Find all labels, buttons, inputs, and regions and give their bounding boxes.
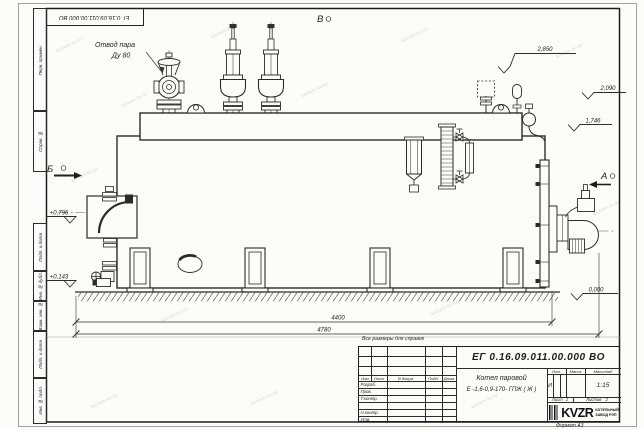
elevation-lower: +0,143 — [50, 275, 69, 281]
title-block: ЕГ 0.16.09.011.00.000 ВО Изм Лист N доку… — [358, 346, 620, 422]
margin-box-sprav-no: Справ. № — [33, 110, 47, 172]
elevation-upper: 2,090 — [599, 86, 616, 92]
view-label-v: В — [317, 14, 324, 25]
lifting-lug-right — [493, 105, 510, 114]
margin-box-inv-dubl: Инв. № дубл. — [33, 270, 47, 302]
safety-valves — [221, 24, 284, 113]
col-header-izm: Изм — [359, 375, 371, 381]
logo-name: KVZR — [561, 406, 593, 420]
elevation-platform: 1,746 — [585, 119, 601, 125]
steam-outlet-valve — [154, 53, 184, 113]
row-label-nkontr: Н.контр. — [361, 410, 379, 415]
row-label-utv: Утв. — [361, 417, 371, 422]
col-header-date: Дата — [442, 375, 456, 381]
drawing-sheet: kotlam-kv.kz kotlam-kv.kz kotlam-kv.kz k… — [0, 0, 644, 430]
margin-box-inv-podl: Инв. № подл. — [33, 377, 47, 424]
margin-box-podp-data-2: Подп. и дата — [33, 330, 47, 379]
margin-box-vzam-inv: Взам. инв. № — [33, 300, 47, 332]
sheet-cell: Лист1 — [547, 397, 573, 402]
corner-stamp: ЕГ 0.16.09.011.00.000 ВО — [46, 8, 144, 26]
steam-outlet-label-line2: Ду 80 — [111, 53, 130, 60]
steam-outlet-label-line1: Отвод пара — [95, 41, 135, 49]
dim-length-main: 4400 — [331, 316, 345, 322]
margin-box-podp-data-1: Подп. и дата — [33, 223, 47, 272]
logo-barcode-icon — [549, 405, 559, 420]
ground-line — [75, 292, 560, 301]
format-label: Формат А3 — [556, 423, 583, 429]
product-name: Котел паровой — [456, 372, 547, 384]
row-label-prov: Пров. — [361, 389, 372, 394]
view-label-a: А — [600, 171, 607, 182]
sheets-total-cell: Листов2 — [573, 397, 621, 402]
col-header-doc: N докум. — [387, 375, 425, 381]
row-label-razrab: Разраб. — [361, 382, 377, 387]
margin-box-perv-primen: Перв. примен. — [33, 8, 47, 112]
product-designation: Е -1,6-0,9-170- ГПЖ ( Ж ) — [456, 385, 547, 395]
scale-value: 1:15 — [585, 374, 621, 397]
reference-note: Все размеры для справок — [362, 336, 424, 342]
row-label-tkontr: Т.контр. — [361, 396, 378, 401]
col-header-podp: Подп. — [425, 375, 442, 381]
title-doc-number: ЕГ 0.16.09.011.00.000 ВО — [456, 347, 621, 368]
view-label-b: Б — [47, 164, 53, 175]
corner-stamp-doc-number: ЕГ 0.16.09.011.00.000 ВО — [59, 14, 129, 20]
elevation-ground: 0,000 — [588, 288, 604, 294]
lit-value: И — [547, 374, 553, 397]
logo-tagline: КОТЕЛЬНЫЙ ЗАВОД РЭП — [595, 408, 618, 416]
boiler-body — [117, 113, 545, 288]
mass-header: Масса — [566, 368, 585, 374]
steam-outlet-callout: Отвод пара Ду 80 — [95, 41, 165, 74]
dim-length-overall: 4780 — [317, 328, 331, 334]
elevation-door: +0,796 — [50, 211, 69, 217]
company-logo: KVZR КОТЕЛЬНЫЙ ЗАВОД РЭП — [548, 403, 620, 422]
lifting-lug-left — [188, 105, 205, 114]
col-header-list: Лист — [371, 375, 387, 381]
burner-assembly — [549, 185, 598, 254]
elevation-top: 2,850 — [536, 47, 553, 53]
